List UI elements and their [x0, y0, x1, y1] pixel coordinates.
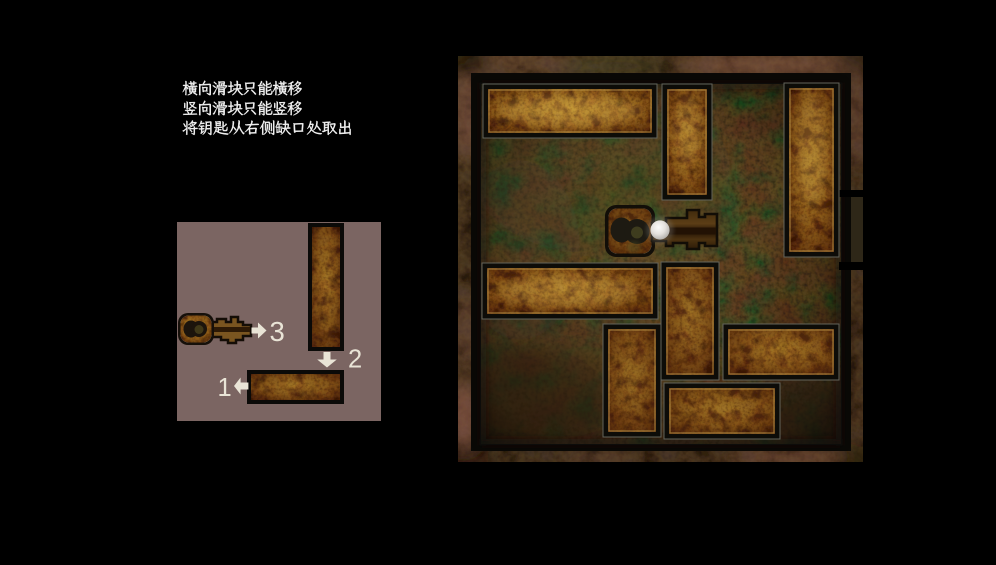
- svg-text:1: 1: [218, 374, 232, 402]
- svg-text:2: 2: [348, 346, 362, 374]
- svg-text:3: 3: [270, 316, 285, 347]
